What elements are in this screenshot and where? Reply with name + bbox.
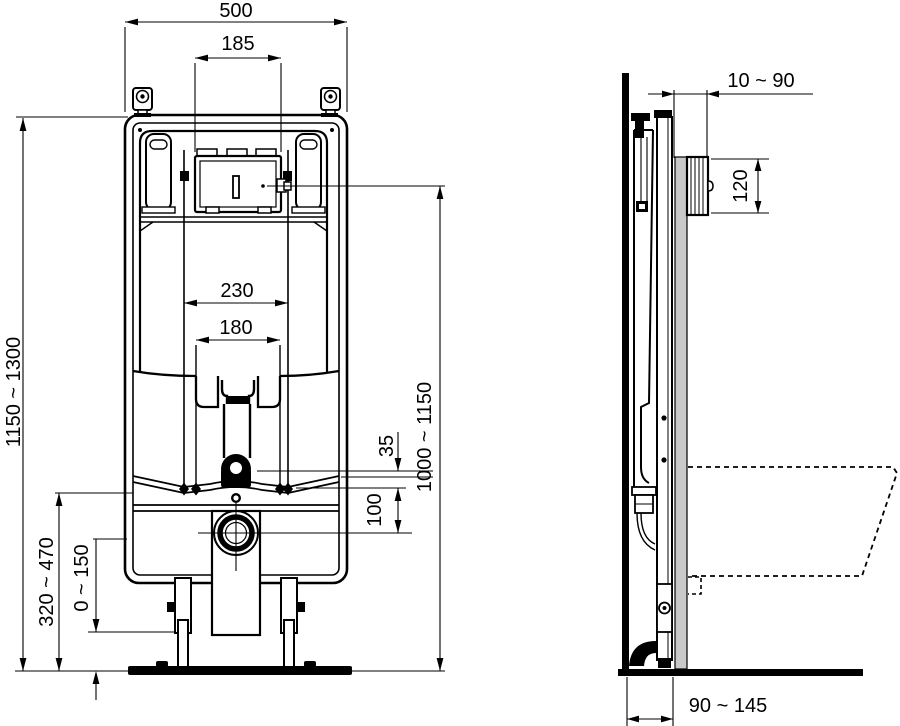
outlet-bend-profile [629, 641, 656, 666]
dim-label-actuator-height: 1000 ~ 1150 [414, 382, 436, 492]
dim-label-fixing-outer: 230 [220, 280, 253, 302]
finished-wall-strip [675, 157, 687, 669]
dim-label-plate-height: 120 [730, 169, 752, 202]
wall-bracket-right [321, 88, 340, 117]
wc-pan-outline [688, 467, 897, 594]
wall-bracket-left [133, 88, 152, 117]
panel-slot [233, 176, 239, 198]
leg-right [281, 578, 305, 669]
dim-label-overall-height: 1150 ~ 1300 [3, 337, 25, 447]
dim-label-outlet-height: 320 ~ 470 [36, 537, 58, 627]
flush-plate-box [687, 157, 713, 215]
dim-label-leg-adjust: 0 ~ 150 [71, 544, 93, 611]
dim-label-recess-depth: 10 ~ 90 [727, 70, 794, 92]
actuator-pivot-dot [261, 184, 265, 188]
installation-drawing-page: 500 185 230 180 1150 ~ 1300 320 ~ 470 0 … [0, 0, 900, 726]
cistern-profile [629, 130, 656, 666]
float-valve-left [142, 134, 175, 213]
side-dimensions [627, 90, 813, 726]
front-view: 500 185 230 180 1150 ~ 1300 320 ~ 470 0 … [3, 0, 445, 700]
float-valve-right [292, 134, 325, 213]
access-panel [195, 149, 291, 213]
dim-label-plate-width: 185 [221, 33, 254, 55]
base-plate [128, 666, 352, 675]
wall-section [622, 73, 629, 671]
floor-section [618, 669, 863, 676]
dim-label-fixing-inner: 180 [219, 317, 252, 339]
technical-drawing: 500 185 230 180 1150 ~ 1300 320 ~ 470 0 … [0, 0, 900, 726]
dim-label-35: 35 [376, 435, 398, 457]
frame-rail-profile [657, 117, 672, 668]
dim-label-overall-width: 500 [219, 0, 252, 22]
side-view: 10 ~ 90 120 90 ~ 145 [618, 70, 897, 726]
dim-label-100: 100 [364, 493, 386, 526]
leg-left [167, 578, 191, 669]
dim-label-frame-depth: 90 ~ 145 [689, 695, 767, 717]
